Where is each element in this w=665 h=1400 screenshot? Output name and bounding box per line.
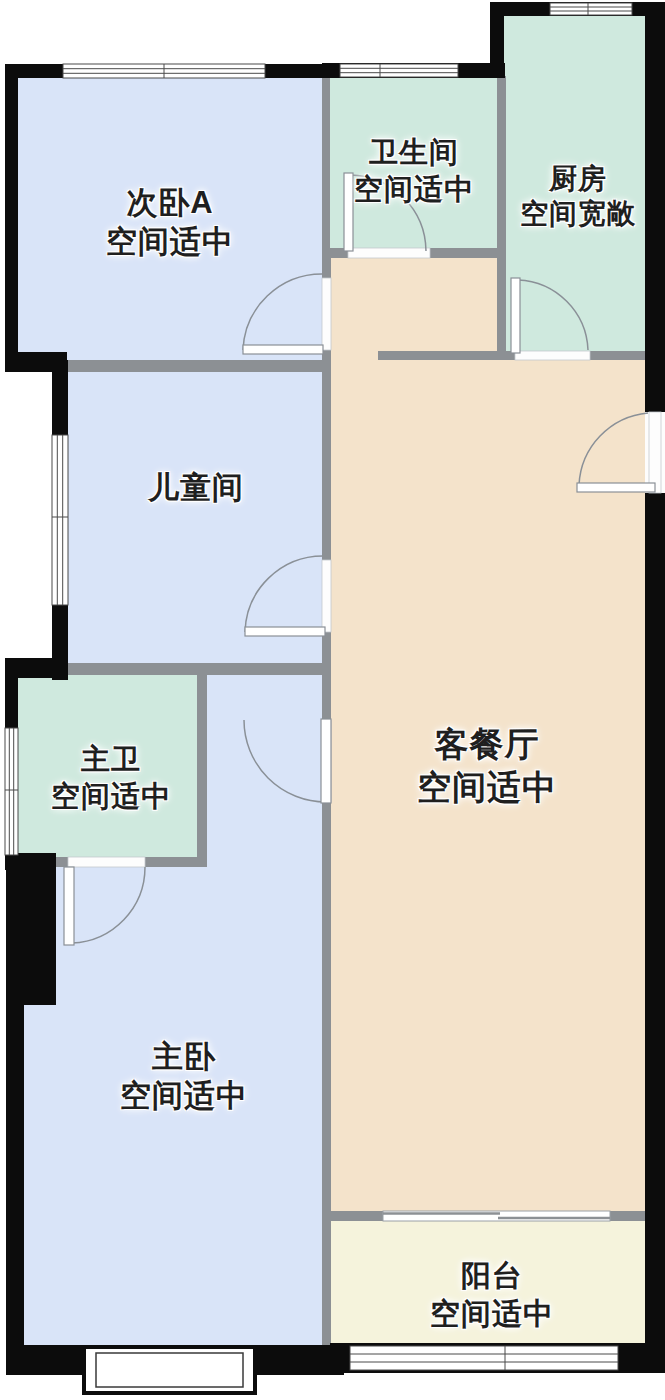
wall-right (645, 2, 665, 1373)
room-label-bathroom: 卫生间 空间适中 (354, 134, 474, 207)
room-name: 卫生间 (354, 134, 474, 171)
opening-bedA-door (322, 278, 331, 350)
door-panel-children (245, 627, 325, 636)
wall-left-upper (5, 64, 18, 364)
room-name: 厨房 (520, 161, 636, 196)
room-note: 空间适中 (417, 766, 557, 809)
door-panel-bedA (243, 345, 323, 354)
door-panel-kitchen (511, 278, 520, 353)
room-master-suite-hall (205, 667, 324, 864)
room-name: 儿童间 (148, 468, 244, 507)
wall-bedA-bath-divider (322, 76, 330, 253)
wall-bath-kitchen-divider (497, 76, 506, 358)
window-kitchen-top (550, 3, 632, 15)
window-balcony-bottom (350, 1346, 618, 1370)
wall-hall-stub (378, 351, 502, 360)
room-name: 次卧A (106, 183, 234, 222)
door-panel-master-suite (321, 719, 331, 803)
window-bath-top (340, 64, 458, 77)
wall-central-seg2 (322, 350, 331, 560)
opening-kitchen-door (515, 351, 590, 360)
room-name: 主卫 (51, 741, 171, 778)
wall-central-seg1 (322, 253, 331, 278)
room-label-living-dining: 客餐厅 空间适中 (417, 723, 557, 809)
wall-children-bottom (56, 663, 324, 675)
room-label-secondary-bedroom-a: 次卧A 空间适中 (106, 183, 234, 261)
wall-left-lower (6, 855, 24, 1375)
wall-balcony-divider-right (610, 1211, 647, 1221)
room-note: 空间适中 (51, 778, 171, 815)
window-masterbath-left (5, 728, 18, 855)
wall-central-seg3 (322, 632, 331, 720)
room-note: 空间适中 (430, 1295, 554, 1333)
room-label-children-room: 儿童间 (148, 468, 244, 507)
opening-bath-door (348, 248, 430, 258)
room-note: 空间适中 (354, 171, 474, 208)
room-label-balcony: 阳台 空间适中 (430, 1257, 554, 1333)
wall-balcony-divider-left (330, 1211, 385, 1221)
room-note: 空间宽敞 (520, 196, 636, 231)
wall-bedA-bottom (56, 360, 324, 372)
opening-children-door (322, 560, 331, 632)
room-children-room (60, 364, 324, 667)
wall-kitchen-bottom-right (590, 351, 647, 360)
door-panel-entry (577, 483, 655, 492)
bay-window-inner-frame (96, 1353, 243, 1387)
wall-central-seg4 (322, 802, 331, 1350)
window-children-left (52, 435, 68, 605)
window-balcony-slider (383, 1211, 610, 1221)
room-name: 主卧 (120, 1037, 248, 1076)
room-name: 阳台 (430, 1257, 554, 1295)
door-panel-bath (344, 173, 353, 251)
window-bedA-top (63, 64, 265, 78)
opening-entry-door-frame (649, 412, 661, 493)
room-label-master-bedroom: 主卧 空间适中 (120, 1037, 248, 1115)
wall-bath-bottom-right (430, 248, 502, 258)
room-label-master-bathroom: 主卫 空间适中 (51, 741, 171, 814)
wall-masterbath-bottom-right (145, 857, 197, 867)
door-panel-masterbath (64, 867, 74, 945)
room-name: 客餐厅 (417, 723, 557, 766)
room-note: 空间适中 (120, 1076, 248, 1115)
opening-masterbath-door (68, 857, 145, 867)
room-note: 空间适中 (106, 222, 234, 261)
bay-window (82, 1345, 255, 1393)
room-label-kitchen: 厨房 空间宽敞 (520, 161, 636, 232)
wall-masterbath-right (197, 675, 207, 867)
floorplan-canvas: 次卧A 空间适中 卫生间 空间适中 厨房 空间宽敞 儿童间 主卫 空间适中 客餐… (0, 0, 665, 1400)
